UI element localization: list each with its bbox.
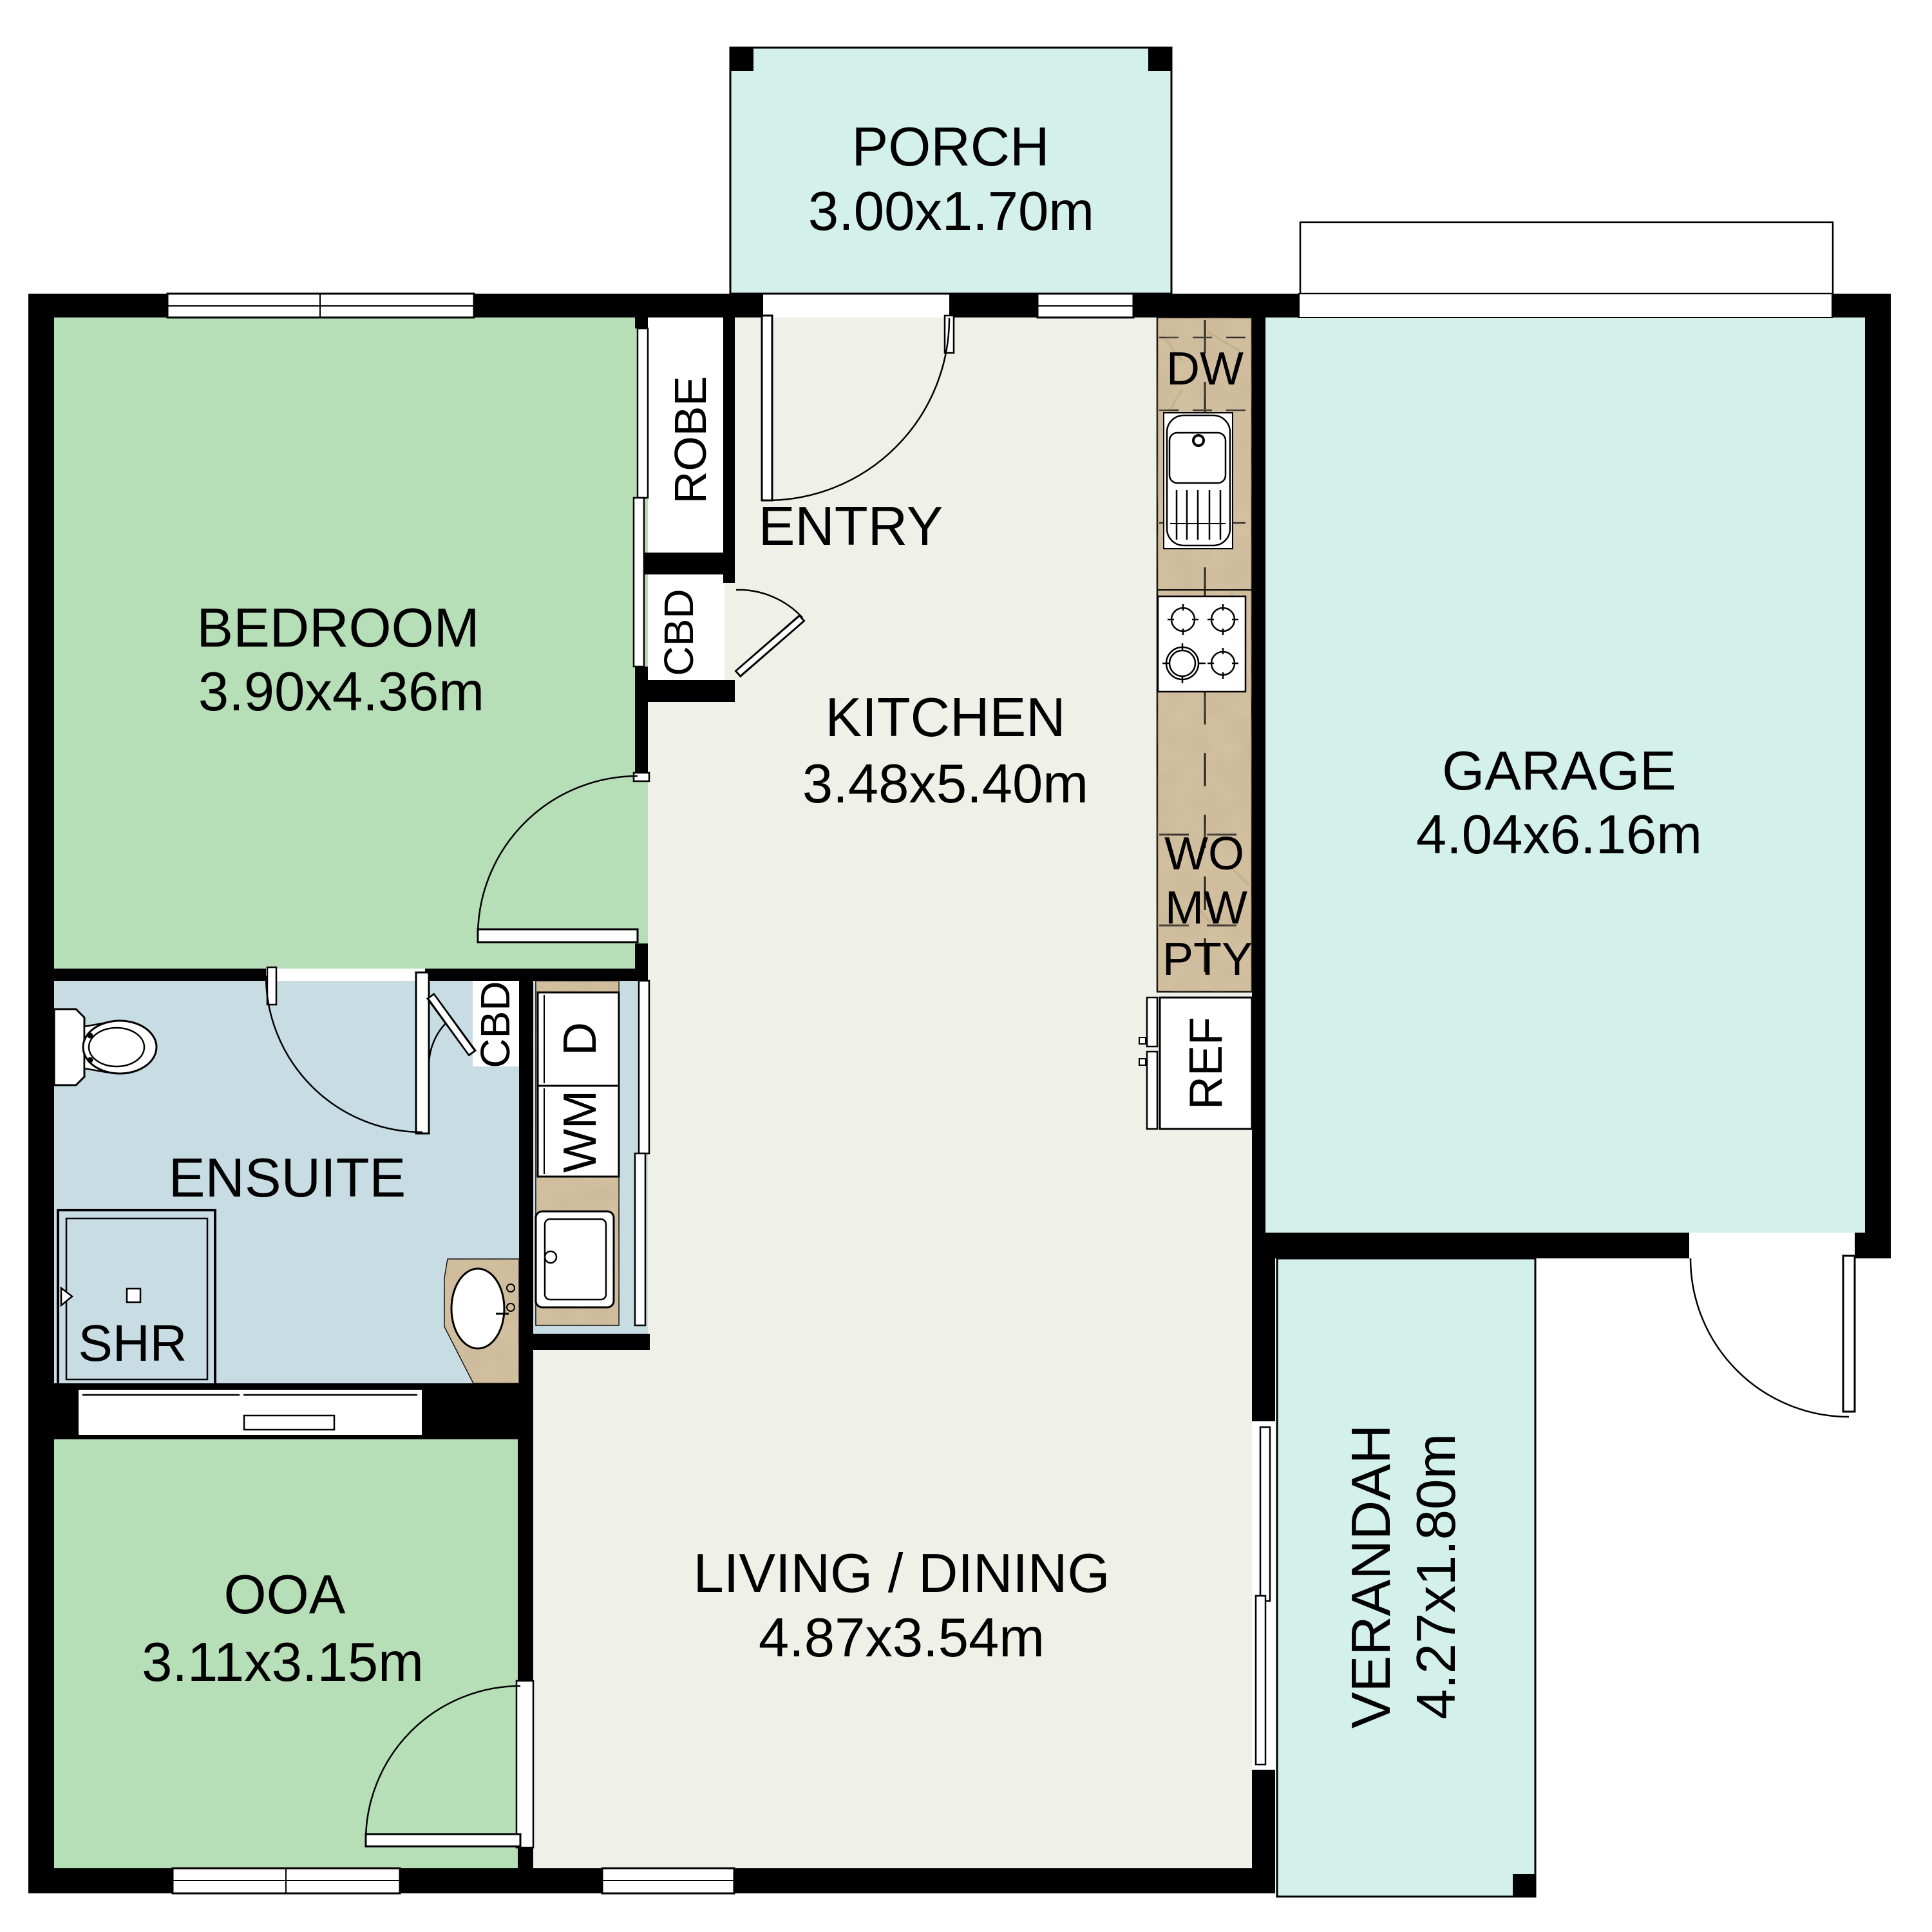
svg-text:3.48x5.40m: 3.48x5.40m xyxy=(802,753,1088,815)
svg-text:KITCHEN: KITCHEN xyxy=(825,687,1065,748)
svg-text:ENTRY: ENTRY xyxy=(759,496,943,557)
svg-text:3.11x3.15m: 3.11x3.15m xyxy=(142,1632,424,1693)
svg-text:WO: WO xyxy=(1164,828,1244,880)
svg-text:3.90x4.36m: 3.90x4.36m xyxy=(198,661,484,723)
svg-text:SHR: SHR xyxy=(79,1314,187,1372)
svg-text:LIVING / DINING: LIVING / DINING xyxy=(693,1543,1110,1604)
svg-text:PTY: PTY xyxy=(1162,934,1253,985)
svg-text:BEDROOM: BEDROOM xyxy=(196,598,479,659)
svg-text:4.87x3.54m: 4.87x3.54m xyxy=(759,1607,1045,1669)
svg-text:GARAGE: GARAGE xyxy=(1442,741,1676,802)
svg-text:D: D xyxy=(554,1022,606,1056)
svg-text:ROBE: ROBE xyxy=(665,376,715,504)
svg-text:MW: MW xyxy=(1165,882,1247,934)
svg-text:CBD: CBD xyxy=(656,589,702,676)
svg-text:OOA: OOA xyxy=(224,1564,346,1625)
svg-text:4.27x1.80m: 4.27x1.80m xyxy=(1406,1434,1467,1719)
svg-text:VERANDAH: VERANDAH xyxy=(1341,1425,1402,1728)
svg-text:CBD: CBD xyxy=(472,981,518,1068)
svg-text:ENSUITE: ENSUITE xyxy=(169,1148,406,1209)
svg-text:3.00x1.70m: 3.00x1.70m xyxy=(808,181,1094,242)
svg-text:WM: WM xyxy=(554,1090,606,1173)
svg-text:DW: DW xyxy=(1166,343,1244,395)
svg-text:4.04x6.16m: 4.04x6.16m xyxy=(1416,804,1702,866)
svg-text:REF: REF xyxy=(1180,1017,1232,1110)
svg-text:PORCH: PORCH xyxy=(852,117,1050,178)
